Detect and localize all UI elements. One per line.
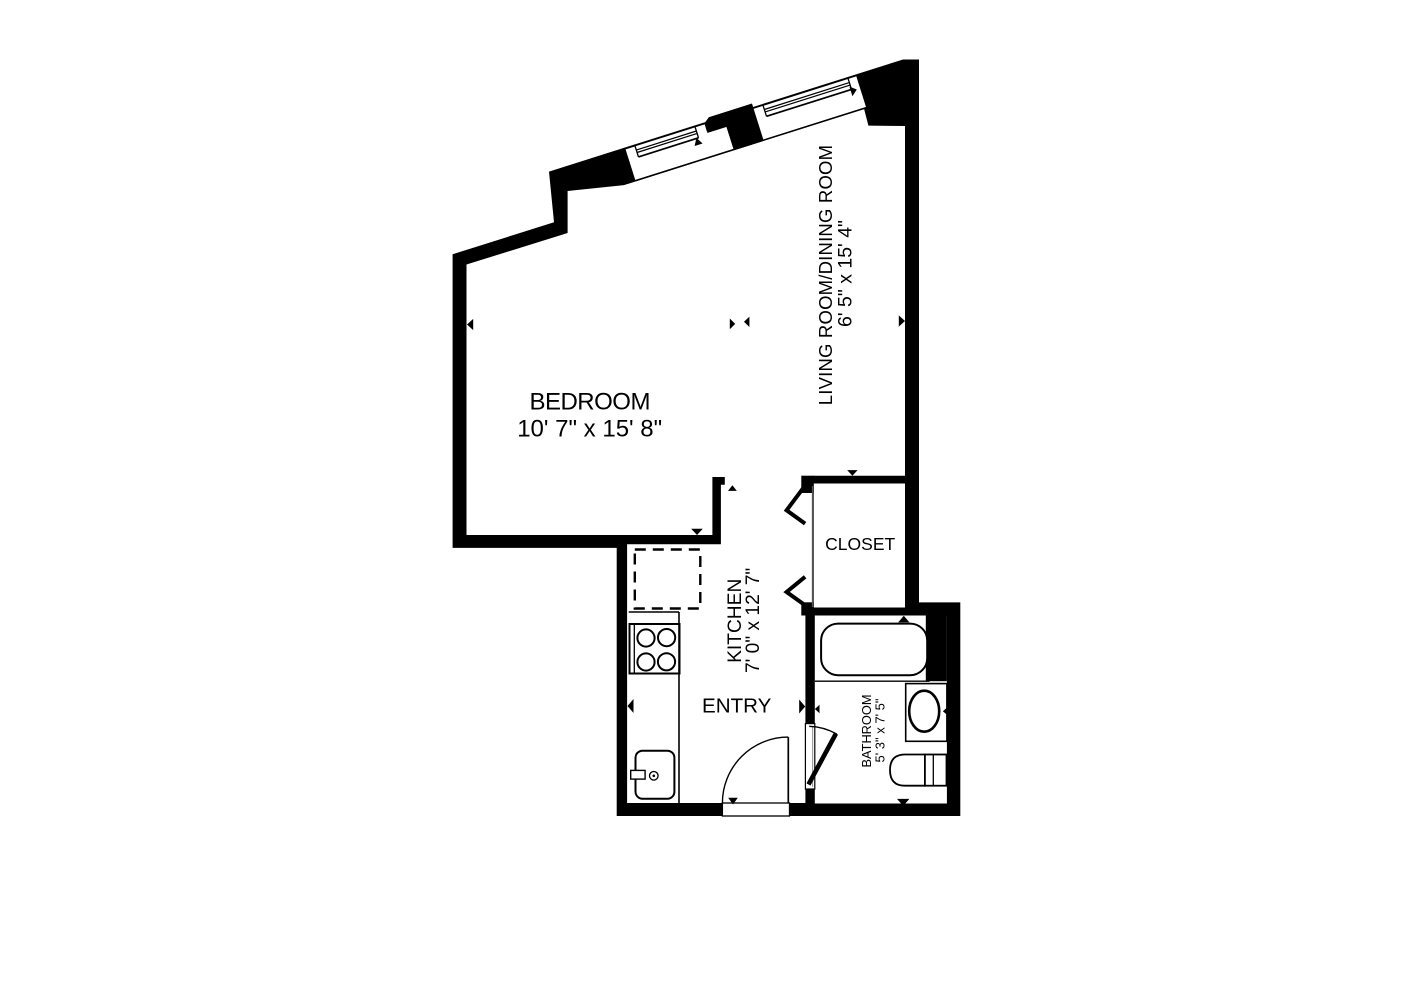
svg-text:10' 7" x 15' 8": 10' 7" x 15' 8" xyxy=(517,416,662,443)
svg-text:5' 3" x 7' 5": 5' 3" x 7' 5" xyxy=(873,698,888,762)
svg-text:7' 0" x 12' 7": 7' 0" x 12' 7" xyxy=(743,568,764,673)
svg-text:BEDROOM: BEDROOM xyxy=(529,389,650,416)
svg-text:6' 5" x 15' 4": 6' 5" x 15' 4" xyxy=(835,220,857,327)
svg-text:LIVING ROOM/DINING ROOM: LIVING ROOM/DINING ROOM xyxy=(815,145,836,406)
svg-text:ENTRY: ENTRY xyxy=(702,694,772,717)
svg-text:CLOSET: CLOSET xyxy=(825,534,895,554)
